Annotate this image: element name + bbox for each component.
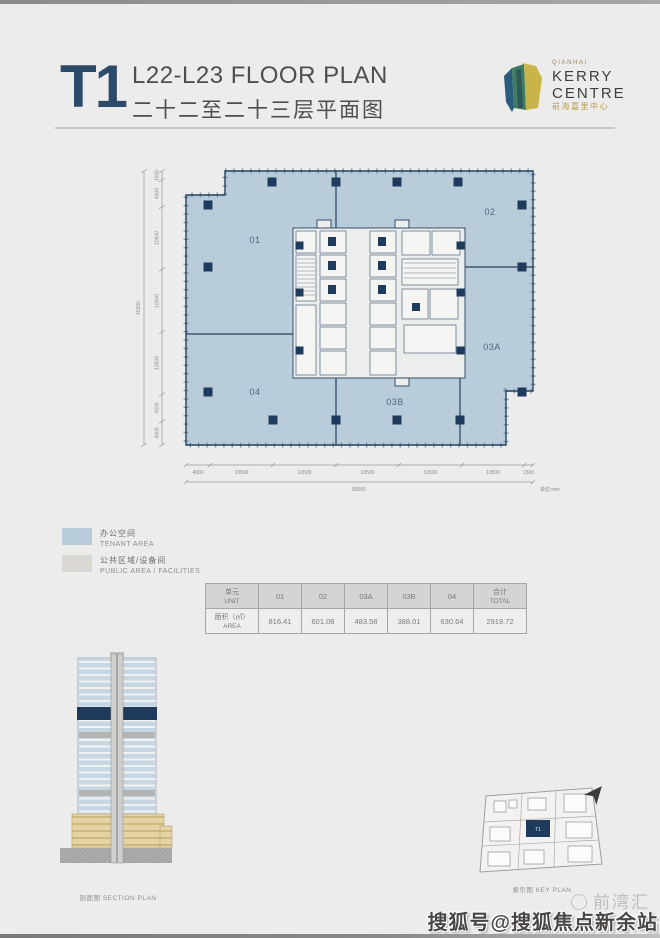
logo-kerry-text: KERRY	[552, 69, 626, 84]
svg-text:10500: 10500	[235, 470, 249, 476]
dimension-total-left: 46200	[136, 301, 142, 315]
logo-centre-text: CENTRE	[552, 86, 626, 101]
legend: 办公空间 TENANT AREA 公共区域/设备间 PUBLIC AREA / …	[62, 528, 200, 582]
building-section-drawing	[56, 650, 180, 888]
dimension-labels-left: 1500 4500 10500 10500 10500 4500 4000 46…	[136, 170, 161, 439]
unit-label-01: 01	[249, 235, 260, 245]
title-chinese: 二十二至二十三层平面图	[132, 94, 388, 124]
unit-label-03b: 03B	[386, 397, 404, 407]
title-english: L22-L23 FLOOR PLAN	[132, 62, 388, 90]
area-value-02: 601.08	[302, 609, 345, 634]
key-plan-drawing: T1	[472, 782, 612, 882]
kerry-centre-wordmark: QIANHAI KERRY CENTRE 前海嘉里中心	[552, 60, 626, 111]
svg-text:4000: 4000	[192, 470, 203, 476]
svg-text:10500: 10500	[155, 294, 161, 308]
svg-text:4500: 4500	[155, 188, 161, 199]
tenant-area-swatch	[62, 528, 92, 545]
logo-qianhai-text: QIANHAI	[552, 60, 626, 66]
area-table-value-row: 面积（㎡） AREA 816.41 601.08 483.58 388.01 6…	[206, 609, 527, 634]
logo-chinese-text: 前海嘉里中心	[552, 103, 626, 111]
area-table: 单元 UNIT 01 02 03A 03B 04 合计 TOTAL 面积（㎡） …	[205, 583, 527, 634]
legend-tenant-en: TENANT AREA	[100, 541, 154, 548]
svg-text:10500: 10500	[155, 231, 161, 245]
column-header-04: 04	[431, 584, 474, 609]
unit-label-03a: 03A	[483, 342, 501, 352]
area-table-header-row: 单元 UNIT 01 02 03A 03B 04 合计 TOTAL	[206, 584, 527, 609]
svg-text:10500: 10500	[361, 470, 375, 476]
unit-note: 单位:mm	[540, 486, 560, 493]
kerry-centre-gem-icon	[498, 58, 546, 116]
svg-text:1500: 1500	[523, 470, 534, 476]
page-edge-top	[0, 0, 660, 4]
total-header-cell: 合计 TOTAL	[474, 584, 527, 609]
svg-text:10500: 10500	[486, 470, 500, 476]
legend-public-cn: 公共区域/设备间	[100, 555, 200, 566]
dimension-lines-left	[141, 169, 165, 447]
svg-text:10500: 10500	[155, 356, 161, 370]
legend-item-tenant-area: 办公空间 TENANT AREA	[62, 528, 200, 548]
public-area-swatch	[62, 555, 92, 572]
section-caption: 剖面图 SECTION PLAN	[56, 892, 180, 902]
keyplan-tower-label: T1	[535, 827, 541, 833]
unit-label-04: 04	[249, 387, 260, 397]
svg-text:10500: 10500	[424, 470, 438, 476]
area-value-03a: 483.58	[345, 609, 388, 634]
tower-label: T1	[60, 52, 126, 121]
legend-public-en: PUBLIC AREA / FACILITIES	[100, 568, 200, 575]
area-value-04: 630.64	[431, 609, 474, 634]
svg-text:4000: 4000	[155, 427, 161, 438]
area-value-total: 2919.72	[474, 609, 527, 634]
area-value-03b: 388.01	[388, 609, 431, 634]
page-edge-bottom	[0, 934, 660, 938]
floor-plan-drawing: 01 02 03A 03B 04 1500 4500 10500 10500 1…	[112, 155, 572, 500]
podium-annex	[160, 826, 172, 848]
dimension-total-bottom: 58000	[352, 487, 366, 493]
page: T1 L22-L23 FLOOR PLAN 二十二至二十三层平面图 QIANHA…	[0, 0, 660, 938]
svg-text:1500: 1500	[155, 170, 161, 181]
page-title: L22-L23 FLOOR PLAN 二十二至二十三层平面图	[132, 62, 388, 124]
column-header-03a: 03A	[345, 584, 388, 609]
legend-item-public-area: 公共区域/设备间 PUBLIC AREA / FACILITIES	[62, 555, 200, 575]
header-divider	[55, 127, 615, 129]
svg-text:10500: 10500	[298, 470, 312, 476]
legend-tenant-cn: 办公空间	[100, 528, 154, 539]
svg-text:4500: 4500	[155, 402, 161, 413]
column-header-01: 01	[259, 584, 302, 609]
column-header-03b: 03B	[388, 584, 431, 609]
unit-label-02: 02	[484, 207, 495, 217]
dimension-labels-bottom: 4000 10500 10500 10500 10500 10500 1500 …	[192, 470, 559, 493]
column-header-02: 02	[302, 584, 345, 609]
area-value-01: 816.41	[259, 609, 302, 634]
unit-header-cell: 单元 UNIT	[206, 584, 259, 609]
area-row-header: 面积（㎡） AREA	[206, 609, 259, 634]
sohu-watermark: 搜狐号@搜狐焦点新余站	[427, 906, 658, 935]
